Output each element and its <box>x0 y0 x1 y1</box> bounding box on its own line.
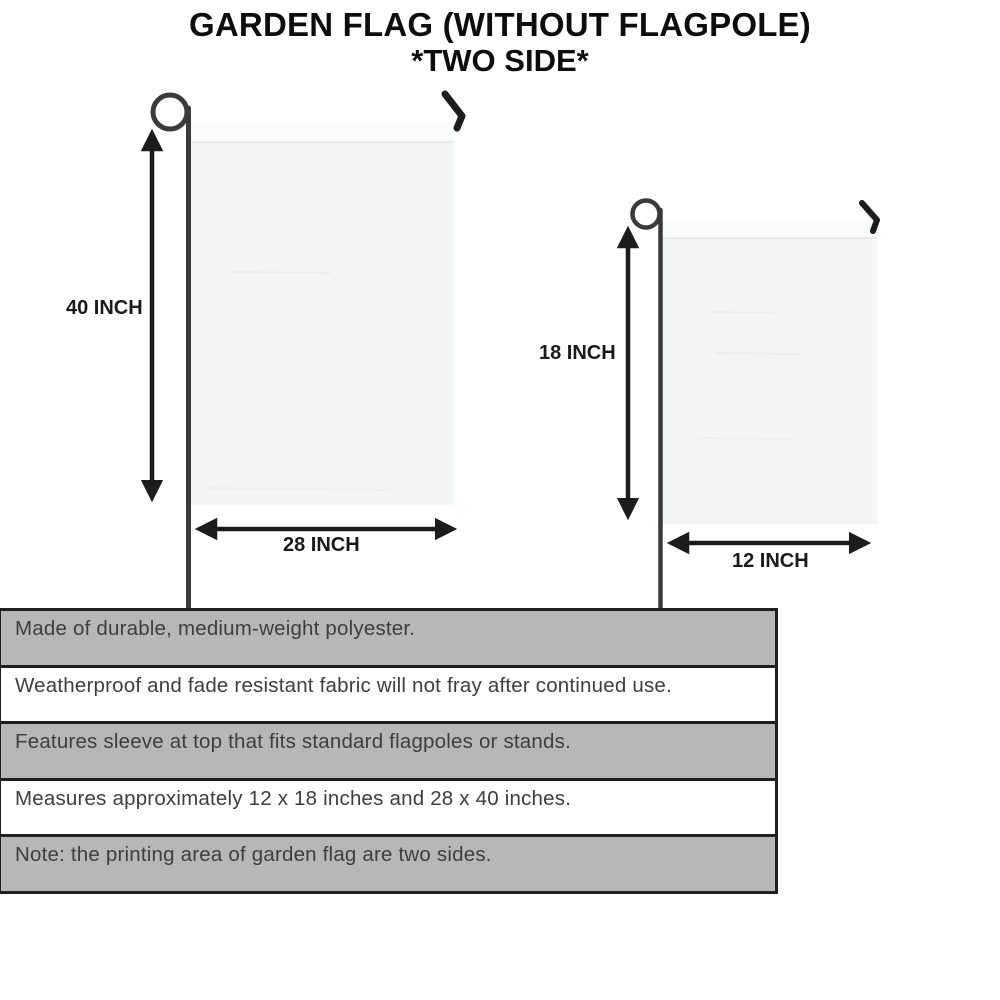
feature-row-sleeve: Features sleeve at top that fits standar… <box>1 724 775 781</box>
feature-row-note: Note: the printing area of garden flag a… <box>1 837 775 891</box>
small-flag-width-label: 12 INCH <box>732 550 809 573</box>
large-flag-cloth <box>190 122 453 505</box>
large-flag-width-label: 28 INCH <box>283 534 360 557</box>
small-flagpole <box>633 201 661 610</box>
feature-row-weatherproof: Weatherproof and fade resistant fabric w… <box>1 668 775 725</box>
small-flag-height-label: 18 INCH <box>539 342 616 365</box>
feature-row-material: Made of durable, medium-weight polyester… <box>1 611 775 668</box>
infographic-canvas: GARDEN FLAG (WITHOUT FLAGPOLE) *TWO SIDE… <box>0 0 1000 1000</box>
feature-row-measures: Measures approximately 12 x 18 inches an… <box>1 781 775 838</box>
small-flag-cloth <box>662 222 877 524</box>
large-flagpole <box>153 95 189 609</box>
feature-table: Made of durable, medium-weight polyester… <box>0 608 778 894</box>
large-flag-height-label: 40 INCH <box>66 297 143 320</box>
